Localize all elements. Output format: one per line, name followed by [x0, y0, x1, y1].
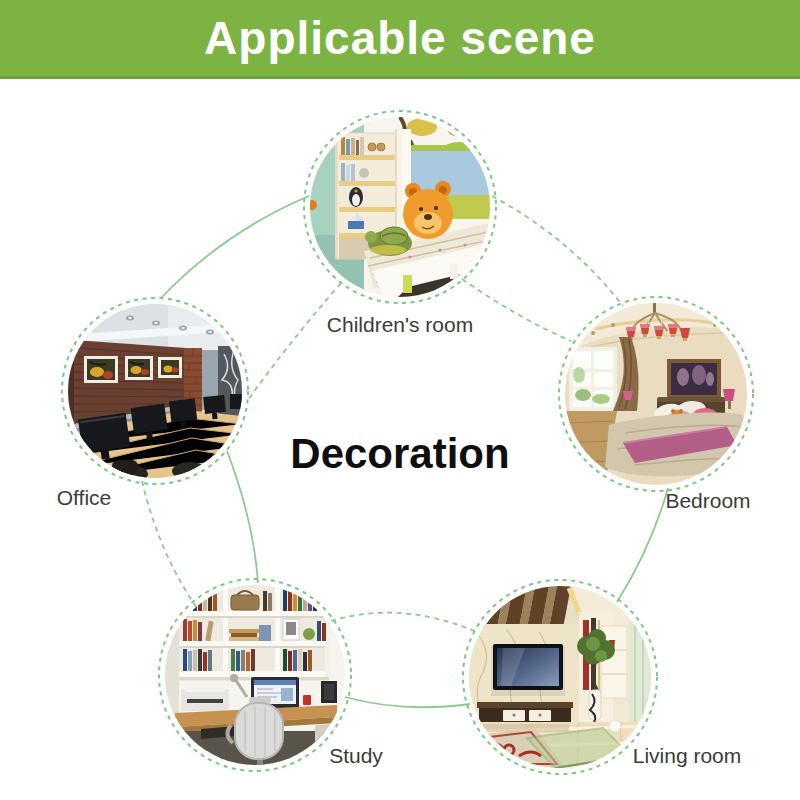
connector-study-living-upper — [331, 613, 477, 632]
connector-bedroom-living — [617, 488, 668, 602]
office-label: Office — [57, 486, 111, 510]
center-label: Decoration — [290, 430, 509, 478]
bedroom-label: Bedroom — [665, 489, 750, 513]
office-photo — [68, 304, 242, 484]
bedroom-photo — [565, 303, 747, 485]
connector-office-study-outer — [142, 481, 197, 608]
study-label: Study — [329, 744, 383, 768]
connector-children-bedroom-inner — [462, 279, 571, 341]
scene-diagram — [0, 0, 800, 800]
study-photo — [165, 585, 345, 765]
connector-office-study-inner — [227, 451, 258, 583]
children-room-photo — [307, 114, 490, 297]
living-room-photo — [469, 586, 651, 768]
connector-study-living-lower — [345, 697, 470, 707]
children-room-label: Children's room — [327, 313, 473, 337]
applicable-scene-infographic: Applicable scene — [0, 0, 800, 800]
connector-children-bedroom-outer — [492, 196, 623, 306]
living-room-label: Living room — [633, 744, 742, 768]
connector-children-office-outer — [161, 196, 309, 298]
connector-children-office-inner — [248, 283, 341, 400]
